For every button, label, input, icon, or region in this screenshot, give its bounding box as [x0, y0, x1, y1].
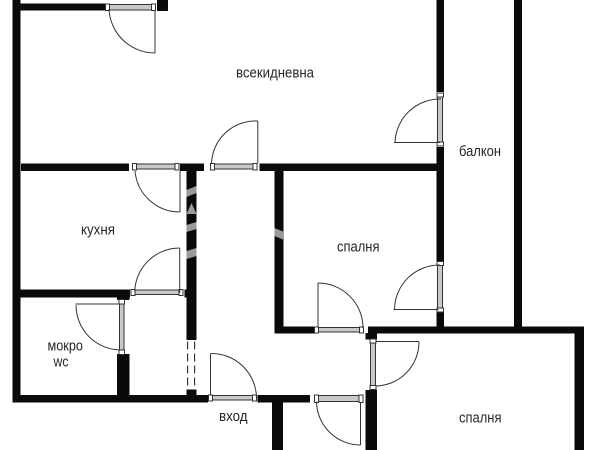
svg-text:балкон: балкон	[459, 143, 501, 160]
svg-text:спалня: спалня	[459, 410, 502, 427]
svg-text:вход: вход	[219, 408, 248, 425]
svg-text:wc: wc	[53, 354, 69, 371]
svg-text:кухня: кухня	[81, 222, 115, 239]
svg-text:спалня: спалня	[337, 239, 380, 256]
svg-text:мокро: мокро	[48, 338, 84, 355]
svg-text:всекидневна: всекидневна	[236, 65, 315, 82]
